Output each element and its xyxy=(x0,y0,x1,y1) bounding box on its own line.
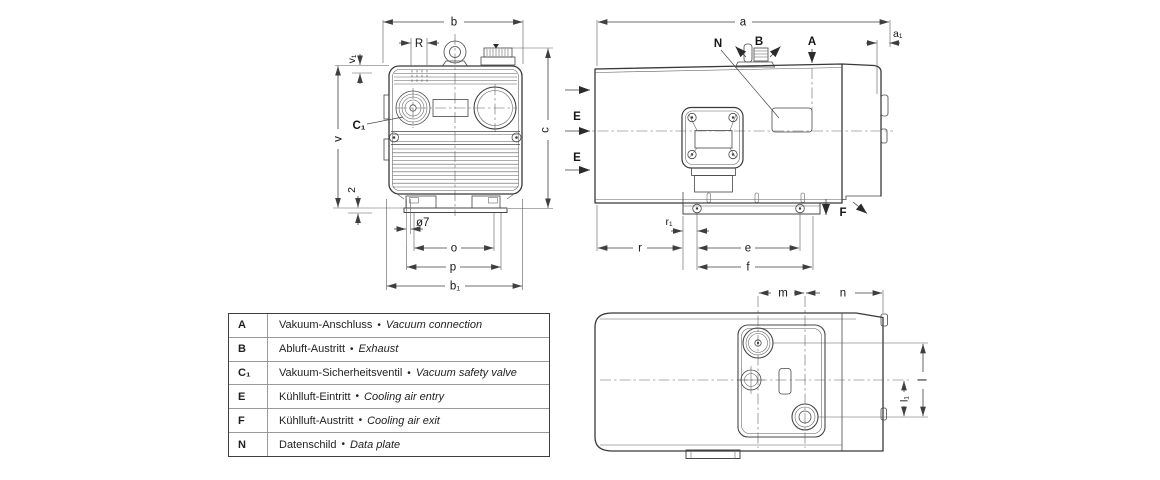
bullet-icon: • xyxy=(359,415,363,426)
legend-symbol: N xyxy=(229,433,268,456)
legend-table: A Vakuum-Anschluss•Vacuum connection B A… xyxy=(228,313,550,457)
side-view: a a₁ N B A E E F r₁ r xyxy=(565,17,903,274)
cooling-fins xyxy=(393,149,519,187)
legend-english: Cooling air exit xyxy=(367,415,440,427)
dim-label-b1: b₁ xyxy=(450,281,460,293)
legend-english: Data plate xyxy=(350,439,400,451)
bullet-icon: • xyxy=(341,439,345,450)
legend-german: Datenschild xyxy=(279,439,336,451)
side-right-tab-upper xyxy=(881,95,888,116)
dim-label-v1: v₁ xyxy=(346,54,358,63)
vacuum-connection-port xyxy=(743,328,773,358)
top-down-view: m n xyxy=(595,288,930,459)
drawing-canvas: b R v₁ v C₁ c 2 ø7 xyxy=(0,0,1160,480)
dim-label-2: 2 xyxy=(346,187,358,193)
dim-label-c: c xyxy=(540,127,552,133)
legend-row-E: E Kühlluft-Eintritt•Cooling air entry xyxy=(229,384,549,408)
legend-symbol: E xyxy=(229,385,268,408)
dim-label-l1: l₁ xyxy=(899,396,911,402)
dim-label-b: b xyxy=(451,17,457,29)
bottom-right-tab-upper xyxy=(881,314,888,326)
legend-german: Kühlluft-Eintritt xyxy=(279,391,351,403)
port-label-C1: C₁ xyxy=(352,120,365,132)
legend-english: Cooling air entry xyxy=(364,391,444,403)
side-body xyxy=(595,64,888,203)
dim-label-e: e xyxy=(745,243,751,255)
dim-label-l: l xyxy=(918,379,930,382)
legend-symbol: F xyxy=(229,409,268,432)
dim-label-n: n xyxy=(840,288,846,300)
port-label-N: N xyxy=(714,38,722,50)
bullet-icon: • xyxy=(350,344,354,355)
fan-cover xyxy=(682,108,743,193)
port-label-B: B xyxy=(755,36,763,48)
bullet-icon: • xyxy=(377,320,381,331)
legend-english: Vacuum safety valve xyxy=(416,367,517,379)
dim-label-dia7: ø7 xyxy=(416,217,429,229)
legend-row-C1: C₁ Vakuum-Sicherheitsventil•Vacuum safet… xyxy=(229,361,549,385)
dim-label-m: m xyxy=(778,288,788,300)
legend-row-A: A Vakuum-Anschluss•Vacuum connection xyxy=(229,314,549,337)
legend-row-F: F Kühlluft-Austritt•Cooling air exit xyxy=(229,408,549,432)
legend-english: Vacuum connection xyxy=(386,319,482,331)
port-label-E-upper: E xyxy=(573,111,581,123)
bullet-icon: • xyxy=(407,368,411,379)
legend-symbol: B xyxy=(229,338,268,361)
legend-row-N: N Datenschild•Data plate xyxy=(229,432,549,456)
port-label-F: F xyxy=(839,207,846,219)
bullet-icon: • xyxy=(356,391,360,402)
dim-label-o: o xyxy=(451,243,457,255)
legend-german: Vakuum-Sicherheitsventil xyxy=(279,367,402,379)
dim-label-R: R xyxy=(415,38,423,50)
dim-label-p: p xyxy=(450,262,456,274)
legend-german: Vakuum-Anschluss xyxy=(279,319,372,331)
dim-label-f: f xyxy=(746,262,750,274)
legend-symbol: C₁ xyxy=(229,362,268,385)
legend-row-B: B Abluft-Austritt•Exhaust xyxy=(229,337,549,361)
data-plate xyxy=(772,108,812,132)
front-view: b R v₁ v C₁ c 2 ø7 xyxy=(333,17,554,293)
dim-label-a: a xyxy=(740,17,747,29)
end-plate xyxy=(737,325,825,437)
bottom-right-tab-lower xyxy=(881,408,887,420)
port-label-E-lower: E xyxy=(573,152,581,164)
oil-fill-cap xyxy=(481,44,515,65)
front-feet xyxy=(397,194,514,246)
dim-label-v: v xyxy=(333,136,345,142)
dim-label-a1: a₁ xyxy=(893,28,903,40)
dim-label-r1: r₁ xyxy=(665,216,672,228)
port-label-A: A xyxy=(808,36,816,48)
technical-drawing-page: b R v₁ v C₁ c 2 ø7 xyxy=(0,0,1160,480)
side-foot-rail xyxy=(683,192,820,214)
legend-symbol: A xyxy=(229,314,268,337)
slot-opening xyxy=(779,369,791,395)
legend-german: Kühlluft-Austritt xyxy=(279,415,354,427)
legend-english: Exhaust xyxy=(359,343,399,355)
dim-label-r: r xyxy=(638,243,642,255)
legend-german: Abluft-Austritt xyxy=(279,343,345,355)
